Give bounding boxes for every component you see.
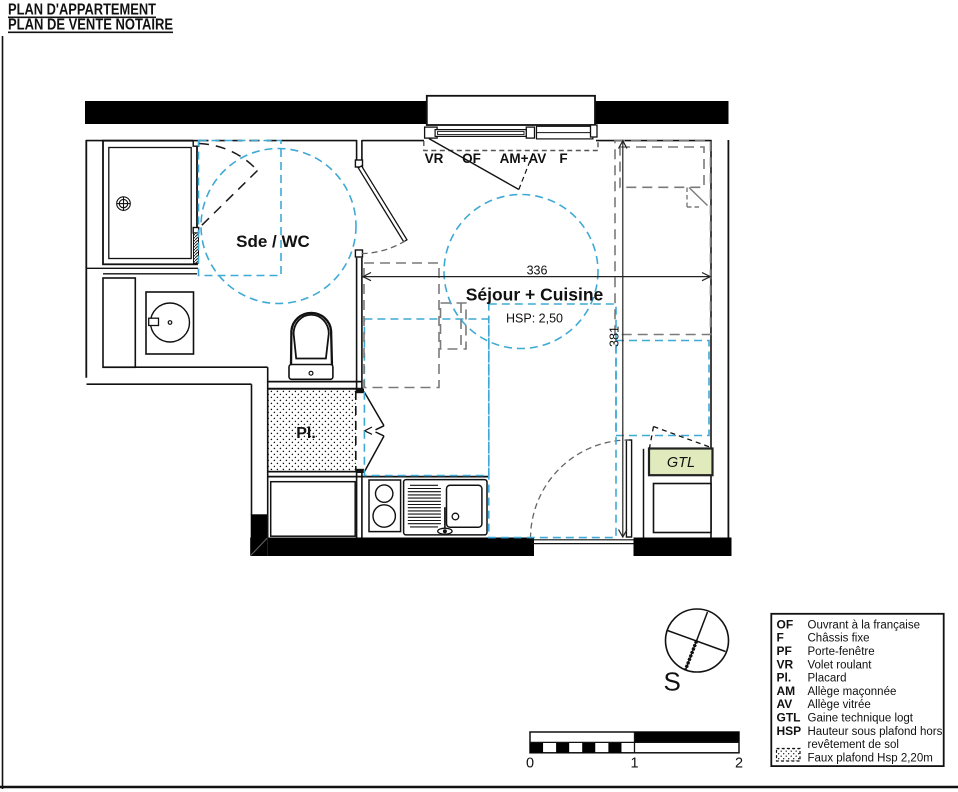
svg-text:Séjour + Cuisine: Séjour + Cuisine xyxy=(466,285,604,305)
svg-text:HSP: 2,50: HSP: 2,50 xyxy=(506,312,563,326)
svg-text:S: S xyxy=(664,667,681,697)
svg-text:336: 336 xyxy=(527,264,548,278)
svg-text:Faux plafond Hsp 2,20m: Faux plafond Hsp 2,20m xyxy=(808,752,933,764)
svg-text:Gaine technique logt: Gaine technique logt xyxy=(808,713,914,725)
svg-text:OF: OF xyxy=(462,151,481,166)
svg-text:Hauteur sous plafond hors: Hauteur sous plafond hors xyxy=(808,726,943,738)
svg-text:0: 0 xyxy=(526,756,534,772)
svg-text:381: 381 xyxy=(608,326,622,347)
svg-text:Sde / WC: Sde / WC xyxy=(236,232,310,251)
svg-text:GTL: GTL xyxy=(777,711,801,725)
svg-text:F: F xyxy=(777,631,784,645)
svg-text:OF: OF xyxy=(777,617,794,631)
svg-text:VR: VR xyxy=(777,657,794,671)
svg-text:PF: PF xyxy=(777,644,792,658)
svg-text:Allège maçonnée: Allège maçonnée xyxy=(808,686,897,698)
svg-text:PLAN DE VENTE NOTAIRE: PLAN DE VENTE NOTAIRE xyxy=(8,17,173,34)
svg-text:2: 2 xyxy=(735,756,743,772)
svg-text:GTL: GTL xyxy=(667,455,695,471)
svg-text:Pl.: Pl. xyxy=(777,671,792,685)
svg-text:AV: AV xyxy=(777,697,793,711)
svg-text:Porte-fenêtre: Porte-fenêtre xyxy=(808,646,875,658)
svg-text:Ouvrant à la française: Ouvrant à la française xyxy=(808,619,921,631)
svg-text:Pl.: Pl. xyxy=(296,425,316,442)
svg-text:Placard: Placard xyxy=(808,673,847,685)
svg-text:AM+AV: AM+AV xyxy=(500,151,547,166)
svg-text:Allège vitrée: Allège vitrée xyxy=(808,699,871,711)
svg-text:Volet roulant: Volet roulant xyxy=(808,659,873,671)
svg-text:1: 1 xyxy=(630,756,638,772)
svg-text:Châssis fixe: Châssis fixe xyxy=(808,633,870,645)
svg-text:F: F xyxy=(559,151,567,166)
svg-text:AM: AM xyxy=(777,684,796,698)
svg-text:revêtement de sol: revêtement de sol xyxy=(808,739,899,751)
svg-text:VR: VR xyxy=(425,151,444,166)
svg-text:HSP: HSP xyxy=(777,724,802,738)
